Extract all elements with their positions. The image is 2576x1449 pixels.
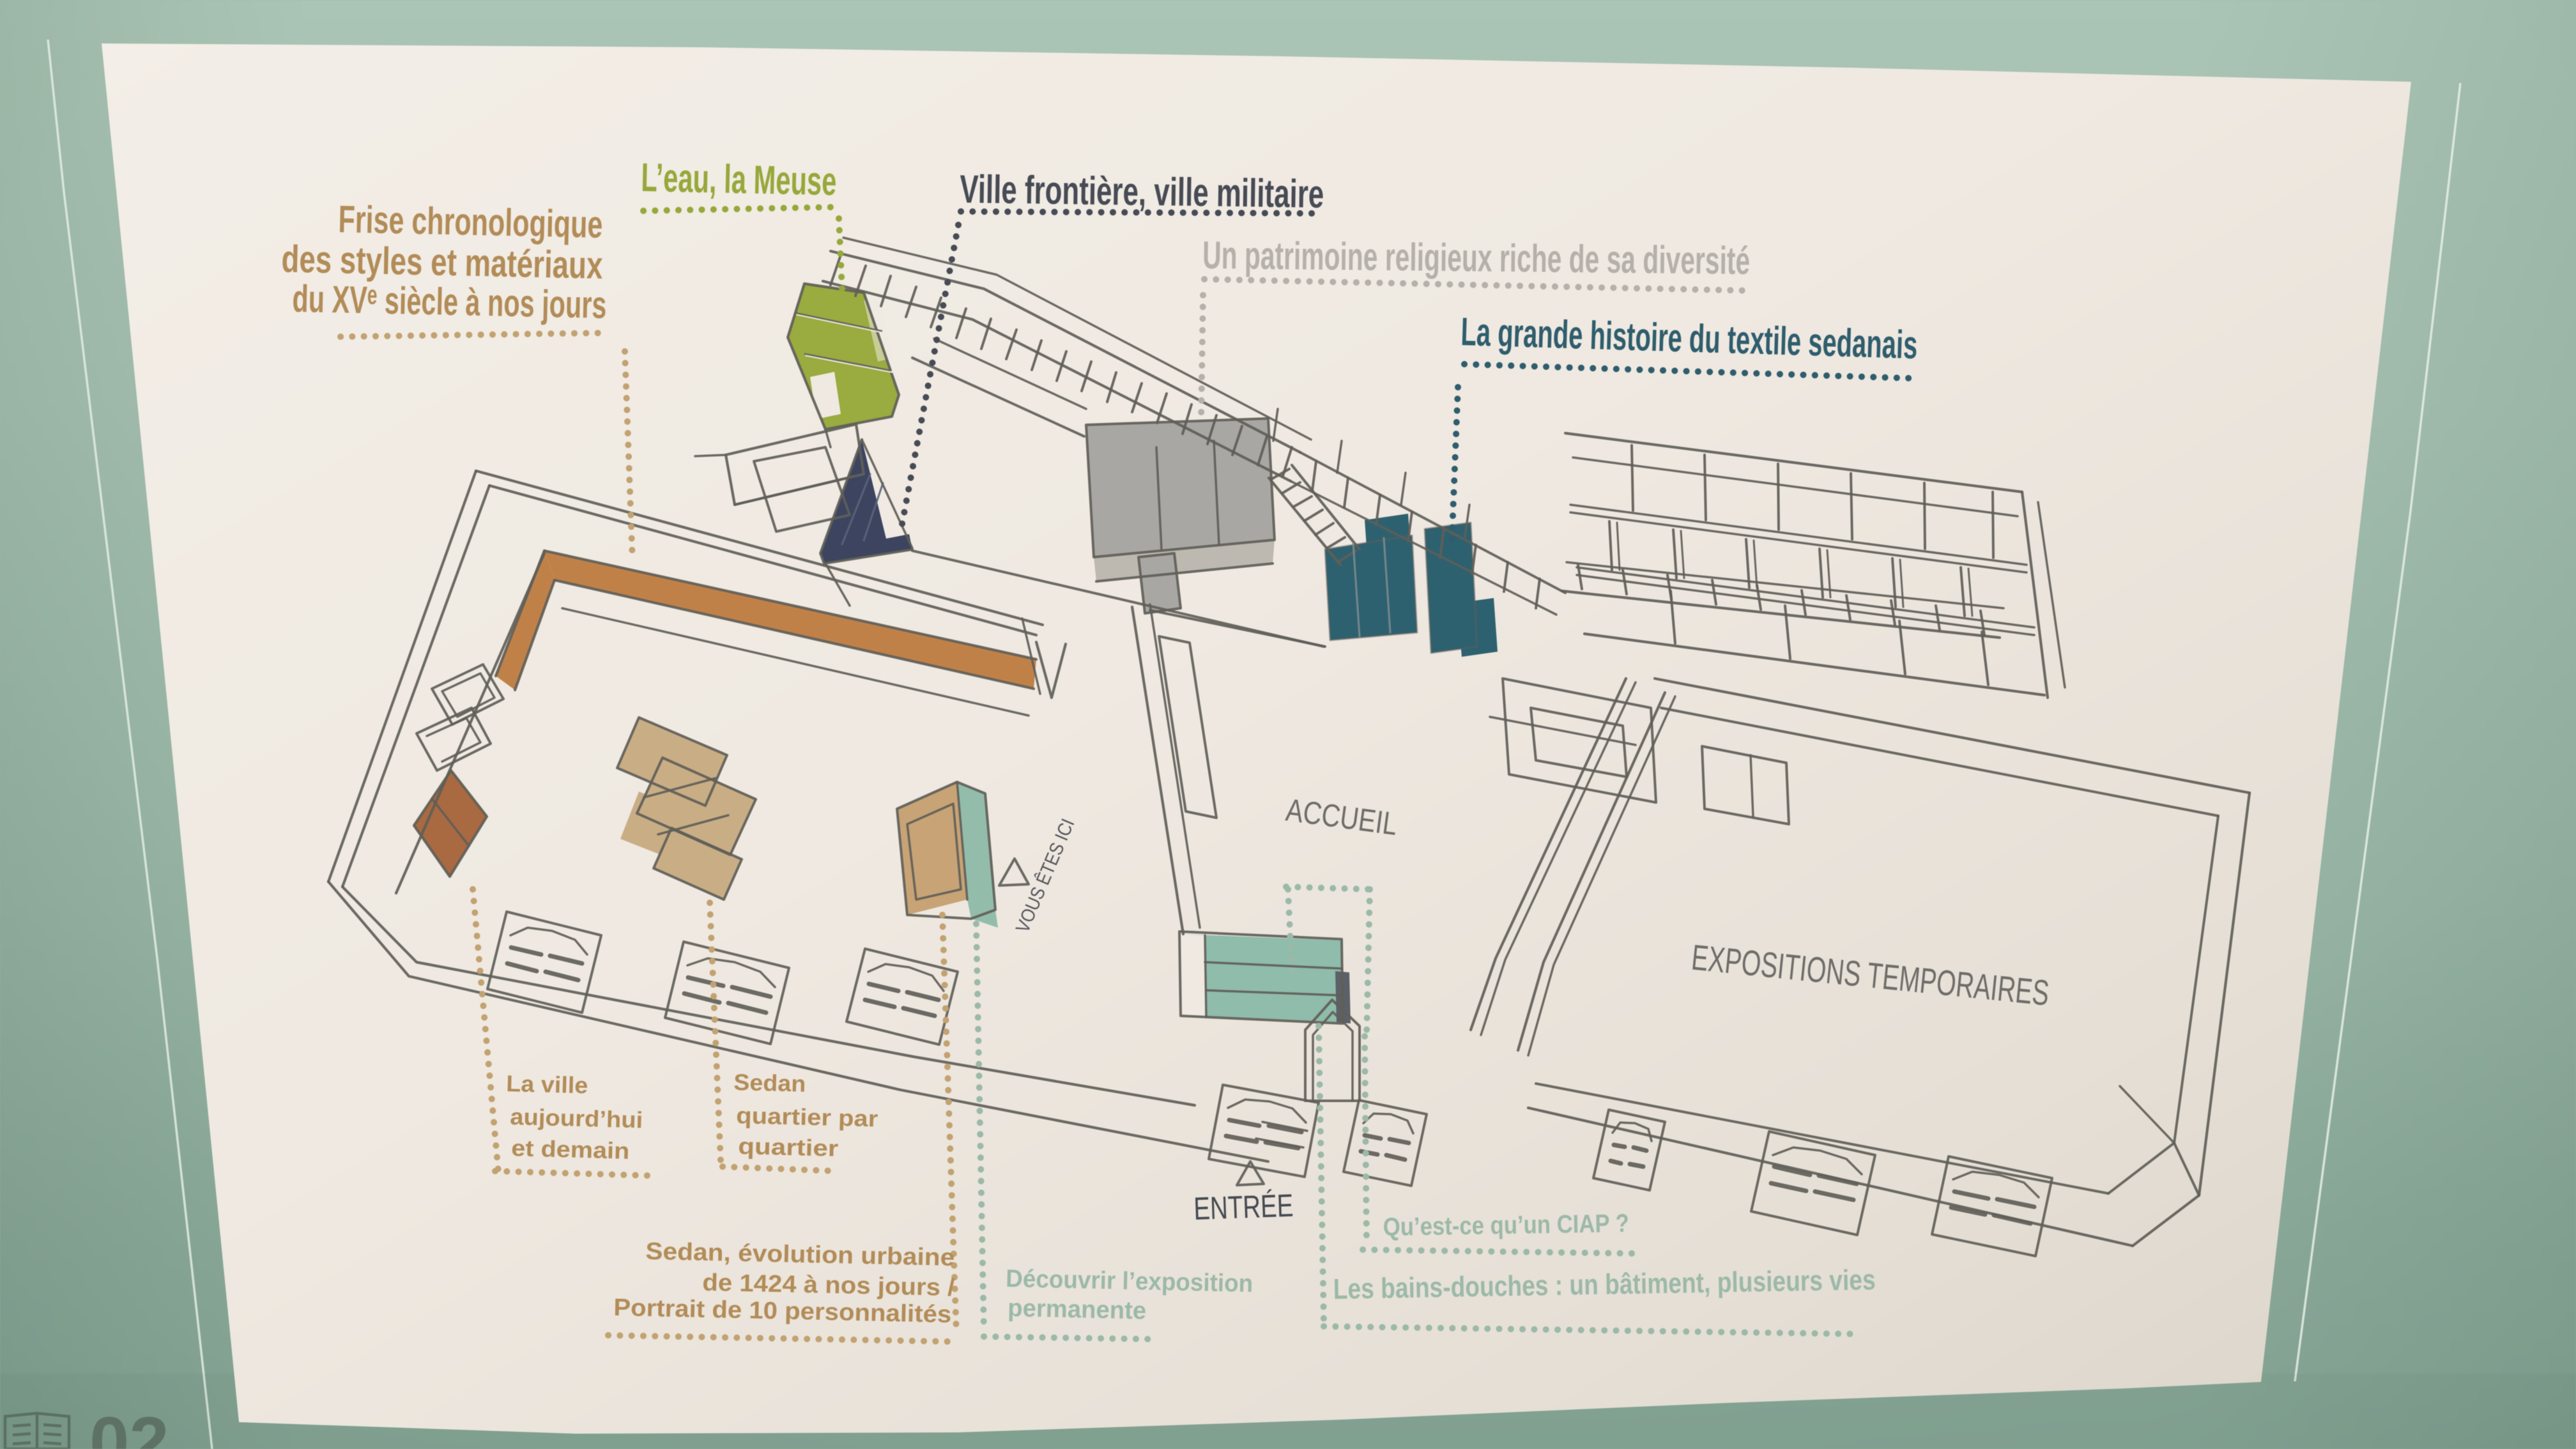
svg-text:Ville frontière, ville militai: Ville frontière, ville militaire: [960, 167, 1324, 217]
svg-text:Qu’est-ce qu’un CIAP ?: Qu’est-ce qu’un CIAP ?: [1383, 1209, 1629, 1241]
svg-text:du XVᵉ siècle à nos jours: du XVᵉ siècle à nos jours: [292, 277, 607, 326]
svg-text:Sedan: Sedan: [733, 1069, 806, 1097]
svg-text:Un patrimoine religieux riche: Un patrimoine religieux riche de sa dive…: [1202, 233, 1751, 282]
svg-text:quartier par: quartier par: [736, 1102, 878, 1131]
svg-text:02: 02: [89, 1402, 169, 1449]
svg-text:aujourd’hui: aujourd’hui: [510, 1103, 643, 1133]
svg-text:et demain: et demain: [511, 1135, 630, 1164]
svg-text:ENTRÉE: ENTRÉE: [1193, 1188, 1294, 1227]
svg-text:Découvrir l’exposition: Découvrir l’exposition: [1006, 1265, 1253, 1298]
svg-text:La ville: La ville: [506, 1070, 588, 1098]
svg-text:permanente: permanente: [1008, 1294, 1147, 1325]
svg-text:L’eau, la Meuse: L’eau, la Meuse: [641, 155, 837, 204]
svg-text:quartier: quartier: [738, 1133, 839, 1161]
